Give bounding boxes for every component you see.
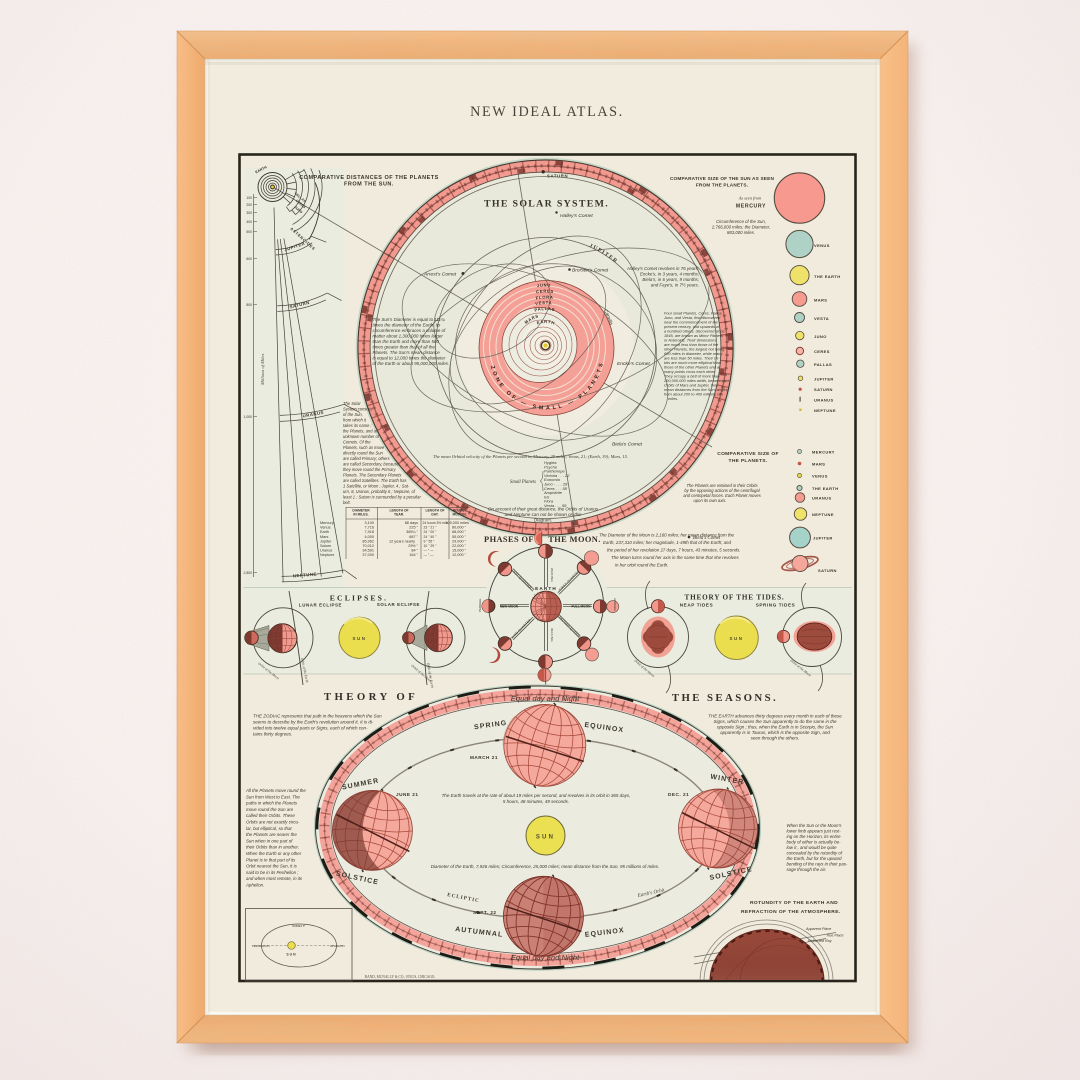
- svg-text:LUNAR ECLIPSE: LUNAR ECLIPSE: [299, 603, 342, 608]
- svg-text:THEORY OF: THEORY OF: [324, 691, 418, 703]
- svg-text:vided into twelve equal parts: vided into twelve equal parts or Signs, …: [253, 726, 368, 731]
- svg-text:URANUS: URANUS: [814, 397, 834, 402]
- svg-text:SUN: SUN: [536, 835, 555, 841]
- svg-text:WANING: WANING: [550, 568, 554, 582]
- svg-text:DAY.: DAY.: [431, 513, 438, 517]
- svg-text:sage through the air.: sage through the air.: [787, 867, 827, 872]
- svg-text:ing on the Horizon, its entire: ing on the Horizon, its entire: [787, 834, 842, 839]
- svg-text:said to be in its Perihelion ;: said to be in its Perihelion ;: [246, 870, 299, 875]
- svg-text:times the diameter of the Eart: times the diameter of the Earth. Its: [373, 323, 442, 328]
- svg-text:Planet is in that part of its: Planet is in that part of its: [246, 857, 296, 862]
- svg-text:On account of their great dist: On account of their great distance, the …: [488, 507, 599, 512]
- svg-text:Uranus: Uranus: [320, 549, 332, 553]
- svg-text:and when most remote, in its: and when most remote, in its: [246, 876, 303, 881]
- svg-text:Planets, such as move: Planets, such as move: [343, 445, 385, 450]
- svg-text:YEAR.: YEAR.: [394, 513, 404, 517]
- svg-text:miles.: miles.: [668, 396, 678, 401]
- svg-text:and Faye's, in 7½ years.: and Faye's, in 7½ years.: [651, 282, 699, 288]
- svg-text:concealed by the rotundity o: concealed by the rotundity of: [787, 851, 843, 856]
- svg-text:NEW MOON: NEW MOON: [500, 605, 519, 609]
- svg-text:Halley's Comet: Halley's Comet: [560, 213, 593, 219]
- svg-text:SUN: SUN: [729, 636, 743, 641]
- svg-text:CERES: CERES: [814, 349, 830, 354]
- svg-text:APOGEE: APOGEE: [613, 598, 617, 611]
- svg-text:70,012: 70,012: [362, 544, 374, 548]
- svg-text:Aphelion.: Aphelion.: [245, 883, 264, 888]
- svg-text:When the Sun or the Moon's: When the Sun or the Moon's: [787, 823, 843, 828]
- svg-text:29,000 ": 29,000 ": [452, 539, 467, 543]
- svg-text:5 hours, 48 minutes, 49 second: 5 hours, 48 minutes, 49 seconds.: [503, 799, 569, 804]
- svg-text:23 " 21 ": 23 " 21 ": [424, 526, 438, 530]
- svg-text:seen through the others.: seen through the others.: [751, 736, 800, 741]
- svg-text:All the Planets move round the: All the Planets move round the: [245, 788, 306, 793]
- svg-text:Earth: Earth: [320, 530, 329, 534]
- svg-text:Saturn: Saturn: [320, 544, 331, 548]
- svg-text:ROTUNDITY OF THE EARTH AND: ROTUNDITY OF THE EARTH AND: [750, 900, 838, 906]
- svg-text:24 " 40 ": 24 " 40 ": [424, 535, 438, 539]
- svg-text:SEPT. 22: SEPT. 22: [473, 910, 497, 915]
- svg-text:Equal day and Night: Equal day and Night: [511, 694, 580, 703]
- svg-text:10 " 29 ": 10 " 29 ": [424, 544, 438, 548]
- svg-text:COMPARATIVE SIZE OF THE SUN A: COMPARATIVE SIZE OF THE SUN AS SEEN: [670, 176, 774, 181]
- svg-text:24 " 00 ": 24 " 00 ": [424, 530, 438, 534]
- svg-text:687 ": 687 ": [409, 535, 418, 539]
- svg-text:THE EARTH: THE EARTH: [812, 486, 839, 491]
- svg-text:109,000 miles: 109,000 miles: [445, 521, 469, 525]
- svg-text:than the Earth and more than 5: than the Earth and more than 500: [373, 339, 440, 344]
- svg-text:WAXING: WAXING: [550, 628, 554, 642]
- svg-text:Biela's, in 6 years, 9 months;: Biela's, in 6 years, 9 months;: [642, 277, 699, 282]
- svg-text:CERES: CERES: [536, 288, 555, 294]
- svg-text:300: 300: [246, 211, 252, 215]
- svg-text:SATURN: SATURN: [814, 387, 833, 392]
- svg-text:The Solar: The Solar: [343, 401, 361, 406]
- svg-text:Comets. Of the: Comets. Of the: [343, 440, 371, 445]
- svg-text:Mercury: Mercury: [320, 521, 334, 525]
- svg-text:The Diameter of the Moon is 2,: The Diameter of the Moon is 2,160 miles;…: [599, 533, 735, 538]
- svg-text:Brorsen's Comet: Brorsen's Comet: [572, 268, 609, 274]
- svg-text:they move round the Primary: they move round the Primary: [343, 467, 397, 472]
- svg-text:3,100: 3,100: [364, 521, 374, 525]
- svg-text:34,591: 34,591: [362, 549, 374, 553]
- svg-text:As seen from: As seen from: [738, 196, 762, 201]
- svg-text:225 ": 225 ": [409, 526, 418, 530]
- svg-text:DEC. 21: DEC. 21: [668, 792, 689, 797]
- svg-text:THE SEASONS.: THE SEASONS.: [672, 692, 778, 704]
- svg-text:JUPITER: JUPITER: [814, 376, 834, 381]
- svg-text:THE ZODIAC represents that pat: THE ZODIAC represents that path in the h…: [253, 714, 382, 719]
- svg-text:VESTA: VESTA: [814, 316, 829, 321]
- svg-text:37,000: 37,000: [362, 553, 374, 557]
- svg-text:55,000 ": 55,000 ": [452, 535, 467, 539]
- svg-text:PERIHELION: PERIHELION: [252, 944, 270, 948]
- svg-text:THE EARTH advances thirty degr: THE EARTH advances thirty degrees every …: [708, 714, 842, 719]
- svg-text:80,000 ": 80,000 ": [452, 526, 467, 530]
- svg-text:When the Earth or any other: When the Earth or any other: [246, 851, 302, 856]
- svg-text:of the Earth or about 95,000,0: of the Earth or about 95,000,000 miles.: [373, 361, 450, 366]
- svg-text:JUNO: JUNO: [814, 334, 827, 339]
- svg-text:times greater than that of all: times greater than that of all the: [373, 345, 436, 350]
- svg-text:JUNE 21: JUNE 21: [396, 792, 419, 797]
- svg-text:7,716: 7,716: [364, 526, 374, 530]
- svg-text:lower limb appears just rest: lower limb appears just rest-: [787, 829, 842, 834]
- svg-text:Biela's Comet: Biela's Comet: [612, 442, 643, 448]
- svg-text:are called Primary; others: are called Primary; others: [343, 456, 390, 461]
- svg-text:Small Planets: Small Planets: [510, 480, 536, 485]
- svg-text:Mars: Mars: [320, 535, 329, 539]
- svg-text:4,000: 4,000: [364, 535, 374, 539]
- svg-text:Earth, 237,310 miles; her magn: Earth, 237,310 miles; her magnitude, 1-4…: [603, 540, 731, 545]
- svg-text:matter about 1,300,000 times l: matter about 1,300,000 times larger: [373, 334, 444, 339]
- svg-text:MARCH 21: MARCH 21: [470, 755, 498, 760]
- svg-text:Arrest's Comet: Arrest's Comet: [423, 272, 457, 278]
- svg-text:VENUS: VENUS: [812, 474, 828, 479]
- svg-text:100: 100: [246, 196, 252, 200]
- svg-text:NEAP TIDES: NEAP TIDES: [680, 603, 713, 608]
- svg-text:body of either is actually: body of either is actually be-: [787, 840, 842, 845]
- svg-text:PHASES OF: PHASES OF: [484, 535, 534, 544]
- svg-text:bending of the rays in their p: bending of the rays in their pas-: [787, 862, 848, 867]
- svg-text:low it , and would be qui: low it , and would be quite: [787, 845, 838, 850]
- svg-text:164 ": 164 ": [409, 553, 418, 557]
- svg-text:Planets. The Secondary Pla: Planets. The Secondary Planets: [343, 473, 401, 478]
- svg-text:are called Secondary, because: are called Secondary, because: [343, 462, 400, 467]
- svg-text:NEW IDEAL ATLAS.: NEW IDEAL ATLAS.: [470, 104, 624, 120]
- svg-text:15,000 ": 15,000 ": [452, 549, 467, 553]
- svg-text:Refracted Ray: Refracted Ray: [808, 939, 833, 943]
- svg-text:JUNO: JUNO: [536, 282, 551, 288]
- svg-text:Halley's Comet revolves in 76: Halley's Comet revolves in 76 years;: [627, 266, 699, 271]
- svg-text:Neptune: Neptune: [320, 553, 334, 557]
- svg-text:tains thirty degrees.: tains thirty degrees.: [253, 732, 292, 737]
- svg-text:lar, but elliptical, so that: lar, but elliptical, so that: [246, 826, 292, 831]
- svg-text:are called Satellites. The: are called Satellites. The Earth has: [343, 478, 407, 483]
- svg-text:Sun when in one part of: Sun when in one part of: [246, 838, 293, 843]
- svg-text:the Planets, and an: the Planets, and an: [343, 429, 379, 434]
- svg-text:2,766,000 miles; the Diameter,: 2,766,000 miles; the Diameter,: [711, 225, 770, 230]
- svg-text:MERCURY: MERCURY: [812, 450, 835, 455]
- svg-text:the Planets are nearer the: the Planets are nearer the: [246, 832, 297, 837]
- svg-text:APHELION: APHELION: [330, 944, 345, 948]
- svg-text:12,000 ": 12,000 ": [452, 553, 467, 557]
- svg-text:move round the Sun are: move round the Sun are: [246, 807, 294, 812]
- svg-text:and Neptune can not be shown o: and Neptune can not be shown on this: [505, 512, 583, 517]
- svg-text:of the Sun,: of the Sun,: [343, 412, 363, 417]
- svg-text:SATURN: SATURN: [547, 174, 568, 179]
- svg-text:84 ": 84 ": [411, 549, 418, 553]
- svg-text:the period of her revolution 2: the period of her revolution 27 days, 7 …: [607, 548, 741, 553]
- svg-text:the Earth, but for the upwa: the Earth, but for the upward: [787, 856, 843, 861]
- svg-text:Encke's, in 3 years, 4 months;: Encke's, in 3 years, 4 months;: [640, 272, 700, 277]
- svg-text:IN MILES.: IN MILES.: [353, 513, 368, 517]
- svg-text:7,918: 7,918: [364, 530, 374, 534]
- svg-text:68,000 ": 68,000 ": [452, 530, 467, 534]
- svg-text:upon its own axis.: upon its own axis.: [694, 498, 727, 503]
- svg-text:THEORY OF THE TIDES.: THEORY OF THE TIDES.: [684, 594, 784, 602]
- svg-text:directly round the Sun: directly round the Sun: [343, 451, 384, 456]
- svg-text:SUN: SUN: [286, 953, 296, 957]
- svg-text:FROM THE PLANETS.: FROM THE PLANETS.: [696, 183, 748, 188]
- svg-text:Sun from West to East. The: Sun from West to East. The: [246, 794, 300, 799]
- svg-text:Millions of Miles: Millions of Miles: [260, 353, 265, 386]
- svg-text:MOTION.: MOTION.: [452, 513, 466, 517]
- svg-text:PERIGEE: PERIGEE: [478, 599, 482, 612]
- svg-text:ORBIT: ORBIT: [292, 924, 305, 928]
- svg-text:COMPARATIVE DISTANCES OF THE P: COMPARATIVE DISTANCES OF THE PLANETS: [299, 175, 439, 181]
- svg-text:The Earth travels at the rate: The Earth travels at the rate of about 1…: [442, 793, 631, 798]
- svg-text:SATURN: SATURN: [818, 568, 837, 573]
- svg-text:their Orbits than in another.: their Orbits than in another.: [246, 845, 299, 850]
- svg-text:MERCURY: MERCURY: [736, 204, 766, 210]
- svg-text:SOLAR ECLIPSE: SOLAR ECLIPSE: [377, 602, 420, 607]
- svg-text:9 " 55 ": 9 " 55 ": [424, 539, 436, 543]
- svg-text:urn, 8, Uranus, probably 6 ; N: urn, 8, Uranus, probably 6 ; Neptune, of: [343, 489, 416, 494]
- svg-text:COMPARATIVE SIZE OF: COMPARATIVE SIZE OF: [717, 451, 779, 457]
- svg-text:Signs, which causes the Sun ap: Signs, which causes the Sun apparently t…: [713, 719, 837, 724]
- svg-text:is equal to 12,000 times the d: is equal to 12,000 times the diameter: [373, 356, 446, 361]
- svg-text:seems to describe by the Earth: seems to describe by the Earth's revolut…: [253, 720, 374, 725]
- svg-text:— " —: — " —: [424, 549, 434, 553]
- svg-text:unknown number of: unknown number of: [343, 434, 380, 439]
- svg-text:opposite Sign ; thus, when th: opposite Sign ; thus, when the Earth is …: [717, 725, 834, 730]
- svg-text:29½ ": 29½ ": [408, 544, 418, 548]
- svg-text:500: 500: [246, 230, 252, 234]
- svg-text:THE PLANETS.: THE PLANETS.: [729, 458, 768, 464]
- svg-text:Orbits are not exactly circu-: Orbits are not exactly circu-: [246, 820, 300, 825]
- svg-text:12 years nearly: 12 years nearly: [389, 539, 415, 543]
- svg-text:URANUS: URANUS: [812, 496, 832, 501]
- svg-text:called their Orbits. These: called their Orbits. These: [246, 813, 295, 818]
- svg-text:SUN: SUN: [352, 636, 366, 641]
- svg-text:circumference embraces a volum: circumference embraces a volume of: [373, 328, 447, 333]
- svg-text:200: 200: [246, 203, 252, 207]
- svg-text:REFRACTION OF THE ATMOSPHERE.: REFRACTION OF THE ATMOSPHERE.: [741, 909, 841, 915]
- svg-text:takes its name ;: takes its name ;: [343, 423, 372, 428]
- svg-text:85,962: 85,962: [362, 539, 374, 543]
- svg-text:2,800: 2,800: [244, 571, 253, 575]
- svg-text:EARTH: EARTH: [535, 586, 557, 591]
- svg-text:MARS: MARS: [812, 462, 825, 467]
- svg-text:THE MOON.: THE MOON.: [548, 535, 600, 544]
- svg-text:Venus: Venus: [320, 526, 331, 530]
- svg-text:SPRING TIDES: SPRING TIDES: [756, 603, 796, 608]
- svg-text:in her orbit round the Earth.: in her orbit round the Earth.: [615, 563, 668, 568]
- svg-text:Apparent Place: Apparent Place: [805, 927, 831, 931]
- svg-text:The Moon turns round her axis: The Moon turns round her axis in the sam…: [611, 555, 739, 560]
- svg-text:1 Satellite, or Moon ; Jupite: 1 Satellite, or Moon ; Jupiter, 4 ; Sat-: [343, 484, 410, 489]
- svg-text:400: 400: [246, 220, 252, 224]
- svg-text:600: 600: [246, 257, 252, 261]
- svg-text:Circumference of the Sun,: Circumference of the Sun,: [716, 219, 766, 224]
- svg-text:The Sun's Diameter is equal to: The Sun's Diameter is equal to 111¼: [373, 317, 446, 322]
- svg-text:FROM THE SUN.: FROM THE SUN.: [344, 182, 394, 188]
- svg-text:True Place: True Place: [826, 934, 844, 938]
- svg-text:belt.: belt.: [343, 500, 351, 505]
- svg-text:Planets. The Sun's mean dista: Planets. The Sun's mean distance: [373, 350, 441, 355]
- svg-text:apparently is in Taurus, which: apparently is in Taurus, which is the op…: [720, 730, 830, 735]
- svg-text:Jupiter: Jupiter: [320, 539, 332, 543]
- svg-text:PALLAS: PALLAS: [814, 362, 832, 367]
- svg-text:1,000: 1,000: [244, 415, 253, 419]
- svg-text:JUPITER: JUPITER: [813, 536, 833, 541]
- svg-text:— " —: — " —: [424, 553, 434, 557]
- svg-text:365¼ ": 365¼ ": [406, 530, 419, 534]
- svg-text:System consists: System consists: [343, 407, 373, 412]
- svg-text:Diagram.: Diagram.: [534, 518, 552, 523]
- svg-text:Orbit nearest the Sun, it i: Orbit nearest the Sun, it is: [246, 864, 298, 869]
- svg-text:from which it: from which it: [343, 418, 367, 423]
- svg-text:FULL MOON: FULL MOON: [572, 605, 592, 609]
- svg-text:Encke's Comet: Encke's Comet: [617, 361, 650, 367]
- svg-text:VENUS: VENUS: [814, 243, 830, 248]
- svg-text:THE EARTH: THE EARTH: [814, 274, 841, 279]
- svg-text:22,000 ": 22,000 ": [452, 544, 467, 548]
- svg-text:THE SOLAR SYSTEM.: THE SOLAR SYSTEM.: [484, 199, 609, 210]
- svg-text:88 days: 88 days: [405, 521, 418, 525]
- svg-text:883,000 miles.: 883,000 miles.: [727, 230, 755, 235]
- svg-text:800: 800: [246, 303, 252, 307]
- svg-text:MARS: MARS: [814, 298, 827, 303]
- svg-text:least 1 ; Saturn is surrounde: least 1 ; Saturn is surrounded by a pecu…: [343, 495, 421, 500]
- svg-text:Diameter of the Earth, 7,926 m: Diameter of the Earth, 7,926 miles; Circ…: [431, 864, 660, 869]
- svg-text:NEPTUNE: NEPTUNE: [814, 408, 836, 413]
- svg-text:paths in which the Planets: paths in which the Planets: [245, 801, 298, 806]
- svg-text:NEPTUNE: NEPTUNE: [812, 512, 834, 517]
